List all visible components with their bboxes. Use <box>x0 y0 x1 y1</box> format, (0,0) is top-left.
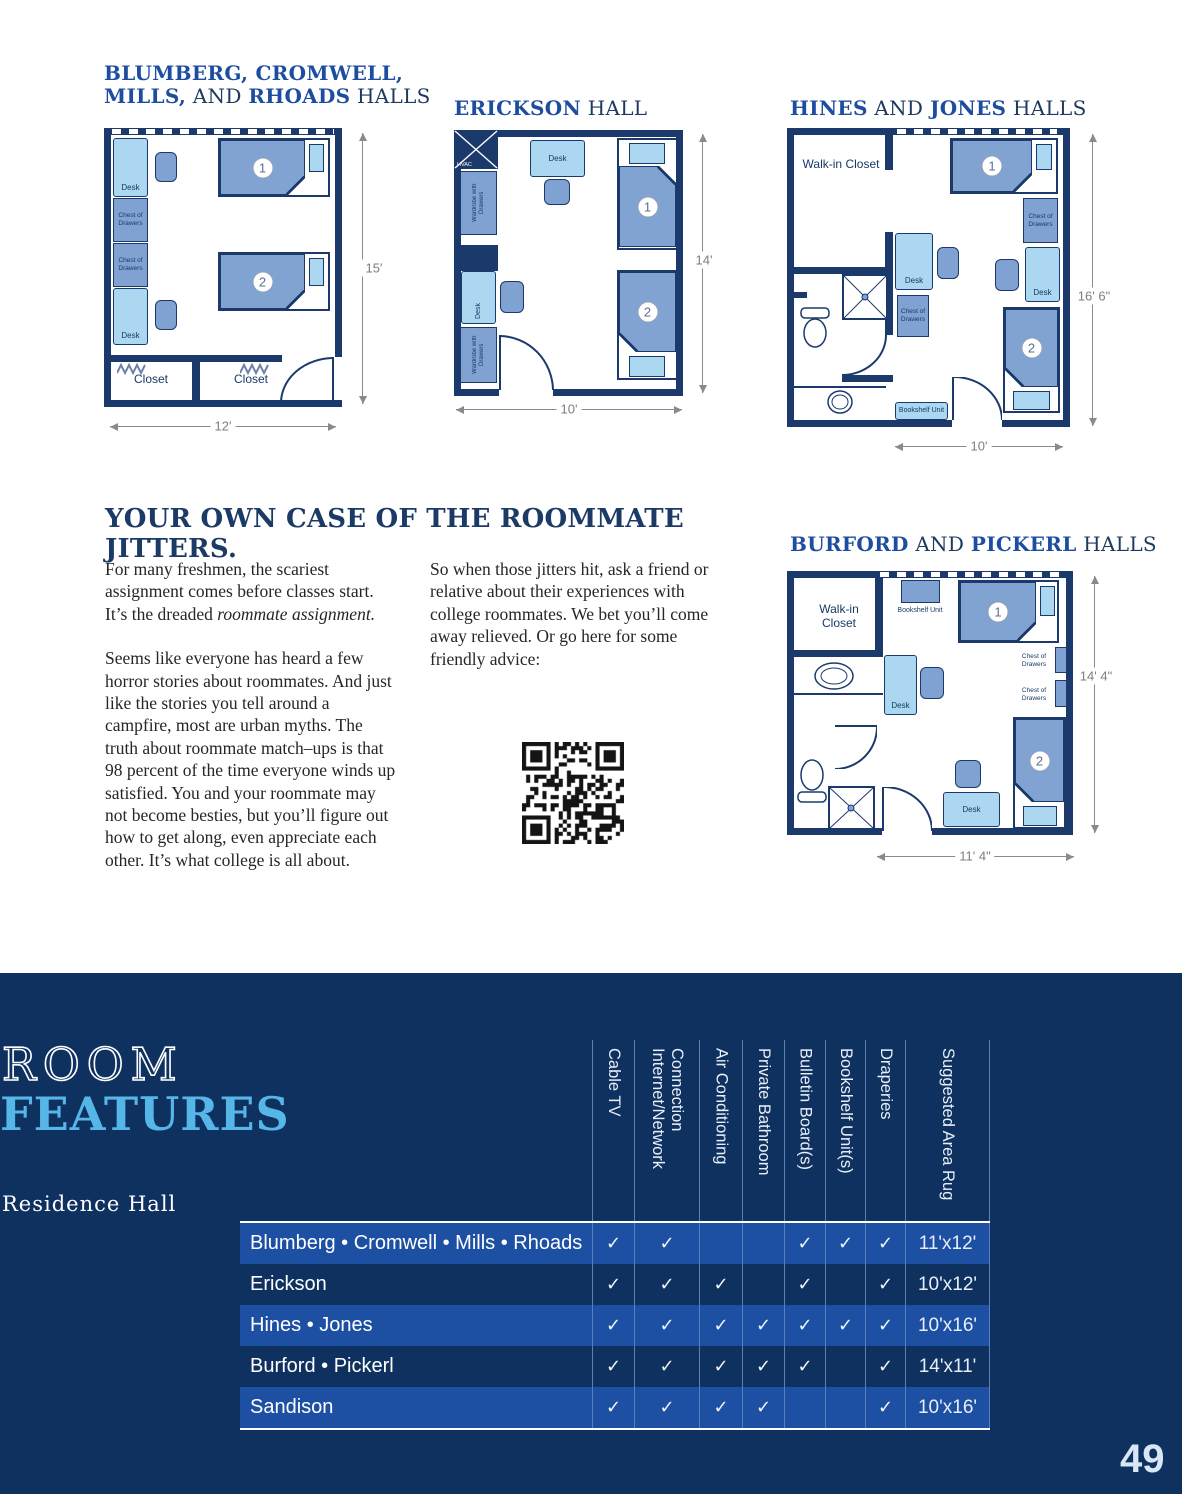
dimension-label: 14' 4" <box>1076 668 1116 685</box>
blanket-fold <box>1013 173 1032 192</box>
desk-label: Desk <box>121 332 139 340</box>
dimension-label: 15' <box>362 260 387 277</box>
table-cell-check: ✓ <box>592 1346 634 1387</box>
plan1-title: BLUMBERG, CROMWELL, MILLS, AND RHOADS HA… <box>104 62 431 108</box>
desk-label: Desk <box>475 303 482 319</box>
table-cell-check: ✓ <box>634 1305 699 1346</box>
desk: Desk <box>884 655 917 715</box>
column-header: Draperies <box>876 1040 895 1218</box>
bed-number: 1 <box>982 156 1003 177</box>
header-cell-empty <box>240 1040 592 1221</box>
pillow <box>1013 391 1050 410</box>
blanket-fold <box>657 166 676 185</box>
header-bookshelf-unit: Bookshelf Unit(s) <box>825 1040 865 1221</box>
page-number: 49 <box>1120 1437 1165 1482</box>
door-opening <box>952 419 1002 427</box>
plan3-title-halls: HALLS <box>1006 96 1086 120</box>
wall-segment <box>842 375 893 382</box>
table-cell-check: ✓ <box>699 1387 742 1428</box>
dimension-line-vertical <box>1094 576 1095 833</box>
dimension-label: 14' <box>692 252 717 269</box>
plan3-title: HINES AND JONES HALLS <box>790 97 1087 120</box>
chair-icon <box>955 760 981 788</box>
bed-1: 1 <box>950 138 1058 194</box>
table-cell-check: ✓ <box>592 1264 634 1305</box>
table-cell-check: ✓ <box>699 1305 742 1346</box>
chest-of-drawers <box>1055 680 1067 707</box>
column-header: Air Conditioning <box>712 1040 731 1218</box>
table-cell-check: ✓ <box>592 1305 634 1346</box>
shower-x-icon <box>828 786 875 830</box>
door-arc-icon <box>280 357 334 402</box>
blanket: 1 <box>952 140 1032 192</box>
window-strip-icon <box>880 572 1060 577</box>
table-cell-check: ✓ <box>784 1346 825 1387</box>
pillow <box>1036 144 1052 170</box>
pillow <box>309 258 324 286</box>
table-cell-check: ✓ <box>592 1223 634 1264</box>
bookshelf-label: Bookshelf Unit <box>899 407 944 415</box>
desk: Desk <box>943 792 1000 827</box>
blanket-fold <box>1015 783 1034 802</box>
bed-2: 2 <box>1003 307 1060 413</box>
closet-divider-wall <box>192 355 200 400</box>
paragraph-italic-text: roommate assignment. <box>217 604 375 624</box>
table-cell-check: ✓ <box>699 1264 742 1305</box>
column-header: Internet/Network Connection <box>648 1040 686 1218</box>
chest-of-drawers: Chest of Drawers <box>897 295 929 337</box>
chest-label: Chest of Drawers <box>114 212 147 228</box>
paragraph: Seems like everyone has heard a few horr… <box>105 647 399 871</box>
shower-x-icon <box>842 274 888 320</box>
walkin-closet-label: Walk-in Closet <box>801 157 881 171</box>
chair-icon <box>544 179 570 205</box>
chair-icon <box>995 259 1019 291</box>
blanket: 1 <box>960 582 1036 641</box>
plan4-title-bold2: PICKERL <box>971 532 1077 556</box>
blanket-fold <box>286 176 305 195</box>
chest-label: Chest of Drawers <box>1015 687 1053 703</box>
table-cell-check: ✓ <box>865 1387 905 1428</box>
table-cell-check: ✓ <box>784 1223 825 1264</box>
chest-label: Chest of Drawers <box>1015 653 1053 669</box>
room-title: ROOM <box>2 1038 184 1091</box>
paragraph: For many freshmen, the scariest assignme… <box>105 558 399 625</box>
blanket: 2 <box>1015 719 1064 802</box>
blanket: 2 <box>220 254 305 309</box>
plan3-title-bold2: JONES <box>930 96 1006 120</box>
door-arc-icon <box>835 727 877 769</box>
table-cell-check: ✓ <box>784 1305 825 1346</box>
desk-label: Desk <box>962 806 980 814</box>
bed-number: 1 <box>252 157 273 178</box>
wardrobe-with-drawers: Wardrobe with Drawers <box>460 171 497 235</box>
column-header: Bulletin Board(s) <box>796 1040 815 1218</box>
dimension-label: 10' <box>557 401 582 418</box>
table-cell-rug: 10'x16' <box>905 1305 990 1346</box>
chest-of-drawers: Chest of Drawers <box>113 198 148 242</box>
window-strip-icon <box>112 129 334 134</box>
table-row-hall: Burford • Pickerl <box>240 1346 592 1387</box>
chair-icon <box>155 152 177 182</box>
table-cell-check <box>825 1264 865 1305</box>
table-bottom-line <box>240 1428 990 1430</box>
bookshelf-unit: Bookshelf Unit <box>895 402 948 420</box>
plan4-title-and: AND <box>909 532 971 556</box>
header-air-conditioning: Air Conditioning <box>699 1040 742 1221</box>
door-arc-icon <box>884 787 932 831</box>
blanket-fold <box>286 290 305 309</box>
plan4-title-halls: HALLS <box>1077 532 1157 556</box>
chest-label: Chest of Drawers <box>898 308 928 324</box>
toilet-icon <box>800 307 830 349</box>
table-cell-check: ✓ <box>865 1346 905 1387</box>
table-cell-check: ✓ <box>784 1264 825 1305</box>
dimension-label: 11' 4" <box>955 848 994 865</box>
bed-number: 2 <box>1029 750 1050 771</box>
dimension-label: 16' 6" <box>1074 288 1114 305</box>
wardrobe-label: Wardrobe with Drawers <box>472 328 486 382</box>
header-draperies: Draperies <box>865 1040 905 1221</box>
blanket-fold <box>1017 622 1036 641</box>
residence-hall-header: Residence Hall <box>2 1192 176 1216</box>
table-cell-rug: 10'x12' <box>905 1264 990 1305</box>
wall-segment <box>454 245 498 271</box>
table-cell-check: ✓ <box>742 1305 784 1346</box>
closet-wall <box>885 135 893 170</box>
header-bulletin-board: Bulletin Board(s) <box>784 1040 825 1221</box>
desk: Desk <box>1025 247 1060 302</box>
door-opening <box>335 357 342 400</box>
sink-icon <box>813 661 855 691</box>
blanket: 1 <box>220 140 305 195</box>
header-private-bathroom: Private Bathroom <box>742 1040 784 1221</box>
pillow <box>309 144 324 172</box>
door-arc-icon <box>842 335 887 375</box>
plan1-title-line1: BLUMBERG, CROMWELL, <box>104 61 403 85</box>
floorplan-burford-pickerl: Walk-in Closet Bookshelf Unit 1 Desk Des… <box>787 571 1073 835</box>
column-header: Bookshelf Unit(s) <box>836 1040 855 1218</box>
desk-label: Desk <box>891 702 909 710</box>
table-cell-rug: 10'x16' <box>905 1387 990 1428</box>
counter-edge <box>794 386 886 388</box>
plan4-title: BURFORD AND PICKERL HALLS <box>790 533 1157 556</box>
window-strip-icon <box>897 129 1057 134</box>
bed-2: 2 <box>617 270 678 380</box>
chest-of-drawers: Chest of Drawers <box>113 243 148 287</box>
dimension-line-vertical <box>1092 134 1093 426</box>
table-cell-check <box>742 1264 784 1305</box>
table-cell-check: ✓ <box>825 1223 865 1264</box>
table-row-hall: Erickson <box>240 1264 592 1305</box>
door-arc-icon <box>954 377 1002 420</box>
chest-of-drawers: Chest of Drawers <box>1023 198 1058 243</box>
desk-label: Desk <box>1033 289 1051 297</box>
sink-icon <box>827 390 853 414</box>
plan1-title-halls: HALLS <box>350 84 430 108</box>
table-cell-check <box>825 1387 865 1428</box>
article-heading: YOUR OWN CASE OF THE ROOMMATE JITTERS. <box>105 504 765 564</box>
column-header: Cable TV <box>604 1040 623 1218</box>
table-cell-rug: 11'x12' <box>905 1223 990 1264</box>
table-cell-check: ✓ <box>634 1264 699 1305</box>
closet-wall <box>794 267 893 274</box>
paragraph: So when those jitters hit, ask a friend … <box>430 558 724 670</box>
plan1-title-bold3: RHOADS <box>248 84 350 108</box>
bed-2: 2 <box>1013 717 1066 829</box>
bed-number: 2 <box>1021 338 1042 359</box>
bed-number: 1 <box>637 196 658 217</box>
plan1-title-and: AND <box>186 84 248 108</box>
table-cell-check <box>699 1223 742 1264</box>
door-arc-icon <box>499 335 554 391</box>
blanket: 2 <box>619 272 676 352</box>
plan2-title-bold: ERICKSON <box>454 96 581 120</box>
table-cell-check <box>742 1223 784 1264</box>
blanket: 2 <box>1005 309 1058 387</box>
header-suggested-area-rug: Suggested Area Rug <box>905 1040 990 1221</box>
blanket-fold <box>1005 368 1024 387</box>
floorplan-erickson: HVAC Wardrobe with Drawers Desk Wardrobe… <box>454 130 683 396</box>
desk-label: Desk <box>905 277 923 285</box>
header-internet: Internet/Network Connection <box>634 1040 699 1221</box>
wall-segment <box>794 292 807 298</box>
plan3-title-bold1: HINES <box>790 96 868 120</box>
chair-icon <box>155 300 177 330</box>
article-column-2: So when those jitters hit, ask a friend … <box>430 558 724 670</box>
brochure-page: BLUMBERG, CROMWELL, MILLS, AND RHOADS HA… <box>0 0 1182 1494</box>
table-cell-check: ✓ <box>634 1346 699 1387</box>
header-cable-tv: Cable TV <box>592 1040 634 1221</box>
walkin-closet-label: Walk-in Closet <box>801 602 877 630</box>
chair-icon <box>920 667 944 699</box>
table-cell-check: ✓ <box>825 1305 865 1346</box>
bed-1: 1 <box>958 580 1059 643</box>
dimension-label: 10' <box>967 438 992 455</box>
desk: Desk <box>113 288 148 345</box>
pillow <box>1040 586 1055 616</box>
table-cell-check: ✓ <box>865 1264 905 1305</box>
desk: Desk <box>895 233 933 290</box>
hvac-label: HVAC <box>457 158 483 172</box>
table-row-hall: Hines • Jones <box>240 1305 592 1346</box>
chair-icon <box>500 281 524 313</box>
plan3-title-and: AND <box>868 96 930 120</box>
table-cell-check: ✓ <box>742 1387 784 1428</box>
blanket: 1 <box>619 166 676 247</box>
table-cell-check: ✓ <box>699 1346 742 1387</box>
table-row-hall: Sandison <box>240 1387 592 1428</box>
column-header: Private Bathroom <box>754 1040 773 1218</box>
bed-1: 1 <box>617 138 678 250</box>
article-column-1: For many freshmen, the scariest assignme… <box>105 558 399 871</box>
dimension-label: 12' <box>211 418 236 435</box>
desk: Desk <box>113 138 148 197</box>
closet-wall <box>794 650 883 657</box>
desk-label: Desk <box>121 184 139 192</box>
bed-number: 2 <box>637 302 658 323</box>
table-cell-check: ✓ <box>634 1223 699 1264</box>
plan4-title-bold1: BURFORD <box>790 532 909 556</box>
column-header: Suggested Area Rug <box>938 1040 957 1218</box>
blanket-fold <box>619 333 638 352</box>
bookshelf-label: Bookshelf Unit <box>893 607 947 615</box>
room-features-table: Cable TV Internet/Network Connection Air… <box>240 1040 990 1430</box>
table-cell-check <box>784 1387 825 1428</box>
chest-label: Chest of Drawers <box>1024 213 1057 229</box>
plan2-title-reg: HALL <box>581 96 647 120</box>
plan2-title: ERICKSON HALL <box>454 97 647 120</box>
closet-label: Closet <box>116 372 186 386</box>
table-cell-check: ✓ <box>742 1346 784 1387</box>
plan1-title-bold2: MILLS, <box>104 84 186 108</box>
desk: Desk <box>530 140 585 177</box>
table-cell-check: ✓ <box>865 1305 905 1346</box>
pillow <box>629 356 665 377</box>
wardrobe-label: Wardrobe with Drawers <box>472 172 486 234</box>
table-cell-check <box>825 1346 865 1387</box>
chair-icon <box>937 247 959 279</box>
wardrobe-with-drawers: Wardrobe with Drawers <box>460 327 497 383</box>
floorplan-hines-jones: Walk-in Closet 1 Chest of Drawers Desk D… <box>787 128 1070 427</box>
bookshelf-unit <box>901 580 940 603</box>
table-cell-rug: 14'x11' <box>905 1346 990 1387</box>
counter-edge <box>794 693 883 695</box>
pillow <box>629 143 665 164</box>
chest-label: Chest of Drawers <box>114 257 147 273</box>
bed-2: 2 <box>218 252 330 311</box>
table-cell-check: ✓ <box>865 1223 905 1264</box>
chest-of-drawers <box>1055 647 1067 673</box>
table-row-hall: Blumberg • Cromwell • Mills • Rhoads <box>240 1223 592 1264</box>
toilet-icon <box>797 758 827 804</box>
table-cell-check: ✓ <box>634 1387 699 1428</box>
closet-label: Closet <box>216 372 286 386</box>
pillow <box>1023 806 1057 826</box>
floorplan-blumberg: Desk Chest of Drawers Chest of Drawers D… <box>104 128 342 407</box>
desk-label: Desk <box>548 155 566 163</box>
table-cell-check: ✓ <box>592 1387 634 1428</box>
qr-code <box>522 742 624 844</box>
bed-number: 1 <box>988 601 1009 622</box>
desk: Desk <box>461 271 496 324</box>
bed-1: 1 <box>218 138 330 197</box>
bed-number: 2 <box>252 271 273 292</box>
